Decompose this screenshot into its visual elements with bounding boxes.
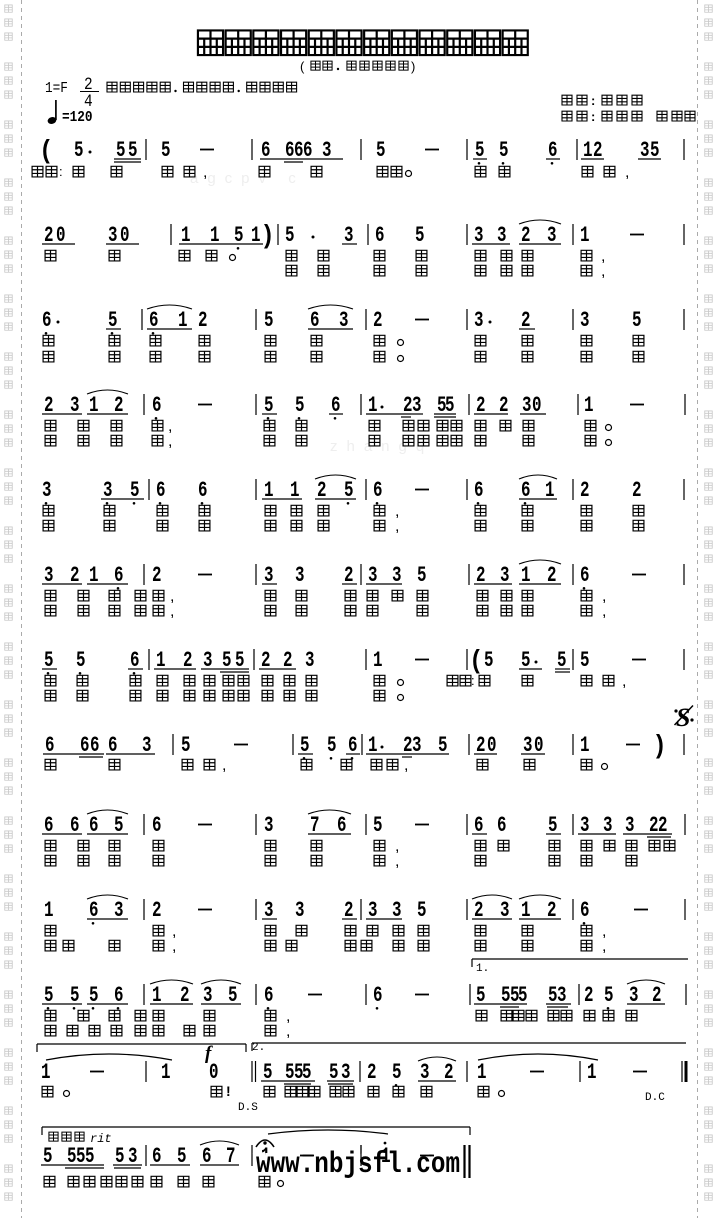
svg-text:1: 1 — [161, 1060, 171, 1085]
svg-text:6: 6 — [497, 813, 507, 838]
svg-text:1: 1 — [477, 1060, 487, 1085]
svg-text:5: 5 — [264, 308, 274, 333]
svg-text:2: 2 — [152, 898, 162, 923]
svg-text:3: 3 — [295, 563, 305, 588]
svg-text:6: 6 — [156, 478, 166, 503]
svg-text:1: 1 — [580, 733, 590, 758]
svg-text:,: , — [625, 164, 629, 181]
svg-text:,: , — [395, 853, 399, 870]
svg-text:S: S — [676, 703, 690, 732]
svg-text:1.: 1. — [476, 963, 489, 975]
svg-text:5: 5 — [417, 898, 427, 923]
svg-text:(: ( — [42, 136, 51, 164]
svg-text:,: , — [203, 164, 207, 181]
svg-text:6: 6 — [580, 898, 590, 923]
svg-text:5: 5 — [327, 733, 337, 758]
svg-text:D.C: D.C — [645, 1092, 665, 1104]
svg-text:2: 2 — [632, 478, 642, 503]
svg-text:): ) — [656, 731, 664, 759]
svg-text:6: 6 — [373, 478, 383, 503]
svg-text:,: , — [602, 938, 606, 955]
svg-text:5: 5 — [392, 1060, 402, 1085]
svg-text:3: 3 — [474, 308, 484, 333]
svg-text:3: 3 — [580, 308, 590, 333]
svg-text:6: 6 — [580, 563, 590, 588]
svg-text:,: , — [602, 603, 606, 620]
svg-text:2: 2 — [198, 308, 208, 333]
svg-text:5: 5 — [580, 648, 590, 673]
svg-text:3: 3 — [264, 813, 274, 838]
svg-text:,: , — [622, 673, 626, 690]
svg-text:,: , — [168, 433, 172, 450]
svg-text:1: 1 — [44, 898, 54, 923]
svg-text:www.nbjsfl.com: www.nbjsfl.com — [256, 1148, 460, 1182]
svg-text:=120: =120 — [62, 109, 93, 126]
svg-text:1: 1 — [41, 1060, 51, 1085]
svg-text:!: ! — [226, 1083, 231, 1099]
svg-text:5: 5 — [415, 223, 425, 248]
svg-text:2: 2 — [580, 478, 590, 503]
svg-text:3: 3 — [42, 478, 52, 503]
svg-text:1: 1 — [584, 393, 594, 418]
svg-text:): ) — [264, 221, 272, 249]
svg-text:(: ( — [300, 59, 305, 74]
svg-text:,: , — [170, 603, 174, 620]
svg-text:6: 6 — [373, 983, 383, 1008]
svg-text:6: 6 — [474, 478, 484, 503]
svg-text:5: 5 — [373, 813, 383, 838]
svg-text:2.: 2. — [252, 1042, 265, 1054]
svg-text:1: 1 — [587, 1060, 597, 1085]
svg-text:2: 2 — [584, 983, 594, 1008]
svg-text:,: , — [222, 757, 226, 774]
svg-text:6: 6 — [264, 983, 274, 1008]
svg-text:,: , — [172, 938, 176, 955]
svg-text:3: 3 — [305, 648, 315, 673]
svg-text:5: 5 — [604, 983, 614, 1008]
svg-text:5: 5 — [438, 733, 448, 758]
svg-text:5: 5 — [302, 1060, 312, 1085]
svg-text::: : — [471, 673, 475, 688]
svg-text:5: 5 — [74, 138, 84, 163]
svg-text:1: 1 — [580, 223, 590, 248]
svg-text:5: 5 — [285, 1060, 295, 1085]
svg-text:5: 5 — [376, 138, 386, 163]
svg-text:,: , — [404, 757, 408, 774]
svg-text:D.S: D.S — [238, 1102, 258, 1114]
svg-text:5: 5 — [181, 733, 191, 758]
svg-text:,: , — [601, 263, 605, 280]
svg-text:2: 2 — [152, 563, 162, 588]
svg-text:5: 5 — [295, 393, 305, 418]
svg-text:1: 1 — [381, 1144, 391, 1169]
svg-text:6: 6 — [375, 223, 385, 248]
svg-text:(: ( — [472, 646, 481, 674]
svg-text:1=F: 1=F — [45, 80, 68, 97]
svg-text::: : — [59, 164, 63, 179]
svg-text:5: 5 — [632, 308, 642, 333]
svg-text:,: , — [395, 518, 399, 535]
svg-text:6: 6 — [152, 813, 162, 838]
svg-text:5: 5 — [417, 563, 427, 588]
svg-text:): ) — [411, 59, 415, 74]
svg-text:5: 5 — [285, 223, 295, 248]
svg-text:1: 1 — [373, 648, 383, 673]
svg-text:5: 5 — [76, 648, 86, 673]
svg-text:5: 5 — [484, 648, 494, 673]
svg-text:6: 6 — [198, 478, 208, 503]
svg-text:2: 2 — [373, 308, 383, 333]
svg-text::: : — [591, 109, 595, 124]
svg-text::: : — [591, 93, 595, 108]
svg-text:5: 5 — [161, 138, 171, 163]
svg-text:2: 2 — [367, 1060, 377, 1085]
svg-text:6: 6 — [42, 308, 52, 333]
svg-text:3: 3 — [295, 898, 305, 923]
svg-text:,: , — [286, 1023, 290, 1040]
svg-text:5: 5 — [499, 138, 509, 163]
svg-text:6: 6 — [152, 393, 162, 418]
